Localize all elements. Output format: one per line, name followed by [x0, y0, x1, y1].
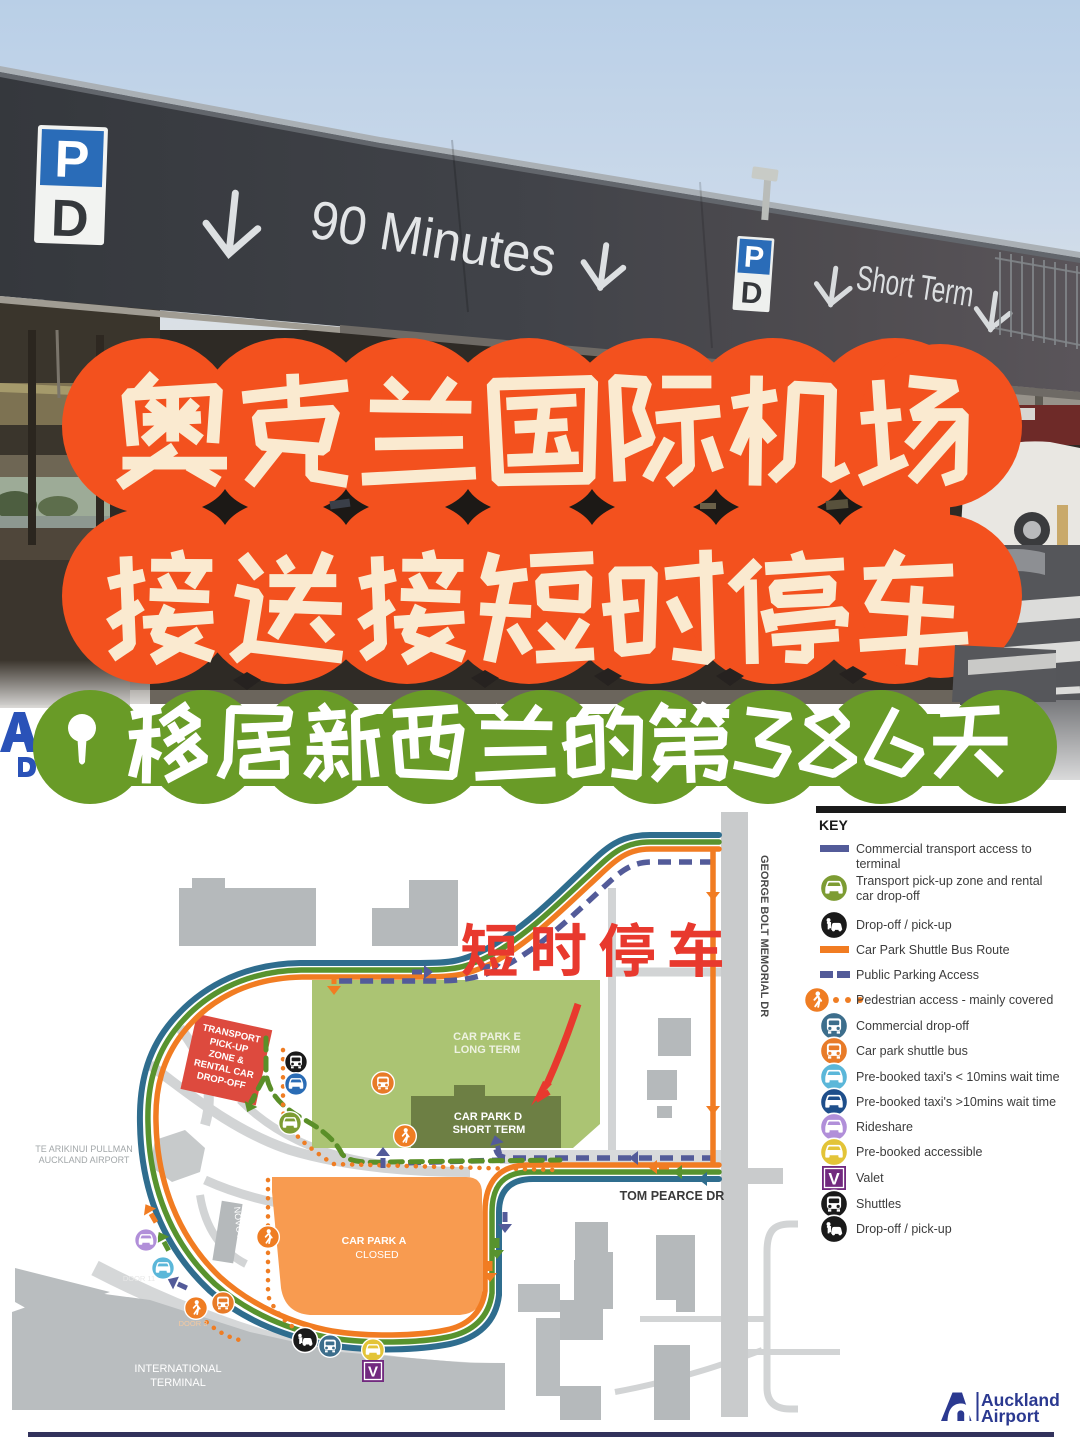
svg-text:Pre-booked accessible: Pre-booked accessible	[856, 1145, 983, 1159]
svg-text:P: P	[54, 130, 91, 189]
svg-text:INTERNATIONAL: INTERNATIONAL	[134, 1363, 221, 1375]
svg-text:AUCKLAND AIRPORT: AUCKLAND AIRPORT	[39, 1155, 130, 1165]
svg-text:Valet: Valet	[856, 1171, 884, 1185]
svg-text:D: D	[50, 189, 90, 248]
svg-text:Shuttles: Shuttles	[856, 1197, 901, 1211]
svg-text:D: D	[740, 276, 764, 310]
svg-text:P: P	[743, 240, 765, 274]
svg-text:KEY: KEY	[819, 817, 848, 833]
svg-text:Commercial drop-off: Commercial drop-off	[856, 1019, 970, 1033]
svg-text:Pedestrian access - mainly cov: Pedestrian access - mainly covered	[856, 993, 1053, 1007]
svg-text:CAR PARK D: CAR PARK D	[454, 1111, 522, 1123]
svg-text:CLOSED: CLOSED	[355, 1249, 399, 1261]
svg-text:V: V	[828, 1170, 840, 1189]
svg-text:Transport pick-up zone and ren: Transport pick-up zone and rental	[856, 874, 1042, 888]
svg-text:TERMINAL: TERMINAL	[150, 1377, 206, 1389]
svg-text:DOOR 3: DOOR 3	[179, 1319, 208, 1328]
svg-text:Public Parking Access: Public Parking Access	[856, 968, 979, 982]
svg-text:Car Park Shuttle Bus Route: Car Park Shuttle Bus Route	[856, 943, 1010, 957]
svg-text:Rideshare: Rideshare	[856, 1120, 913, 1134]
svg-text:Drop-off / pick-up: Drop-off / pick-up	[856, 1222, 952, 1236]
svg-text:Airport: Airport	[981, 1406, 1040, 1426]
svg-text:GEORGE BOLT MEMORIAL DR: GEORGE BOLT MEMORIAL DR	[758, 855, 770, 1017]
svg-text:V: V	[368, 1364, 378, 1381]
svg-text:Car park shuttle bus: Car park shuttle bus	[856, 1044, 968, 1058]
svg-text:Pre-booked taxi's >10mins wait: Pre-booked taxi's >10mins wait time	[856, 1095, 1056, 1109]
svg-text:car drop-off: car drop-off	[856, 889, 920, 903]
svg-text:Drop-off / pick-up: Drop-off / pick-up	[856, 918, 952, 932]
svg-text:TE ARIKINUI PULLMAN: TE ARIKINUI PULLMAN	[35, 1144, 133, 1154]
svg-text:CAR PARK E: CAR PARK E	[453, 1031, 521, 1043]
svg-text:Commercial transport access to: Commercial transport access to	[856, 842, 1032, 856]
svg-text:CAR PARK A: CAR PARK A	[342, 1235, 407, 1247]
svg-text:SHORT TERM: SHORT TERM	[453, 1124, 526, 1136]
svg-text:LONG TERM: LONG TERM	[454, 1044, 520, 1056]
svg-text:TOM PEARCE DR: TOM PEARCE DR	[620, 1189, 725, 1203]
svg-text:DOOR 11: DOOR 11	[123, 1274, 155, 1283]
svg-text:Pre-booked taxi's < 10mins wai: Pre-booked taxi's < 10mins wait time	[856, 1070, 1060, 1084]
svg-text:terminal: terminal	[856, 857, 900, 871]
